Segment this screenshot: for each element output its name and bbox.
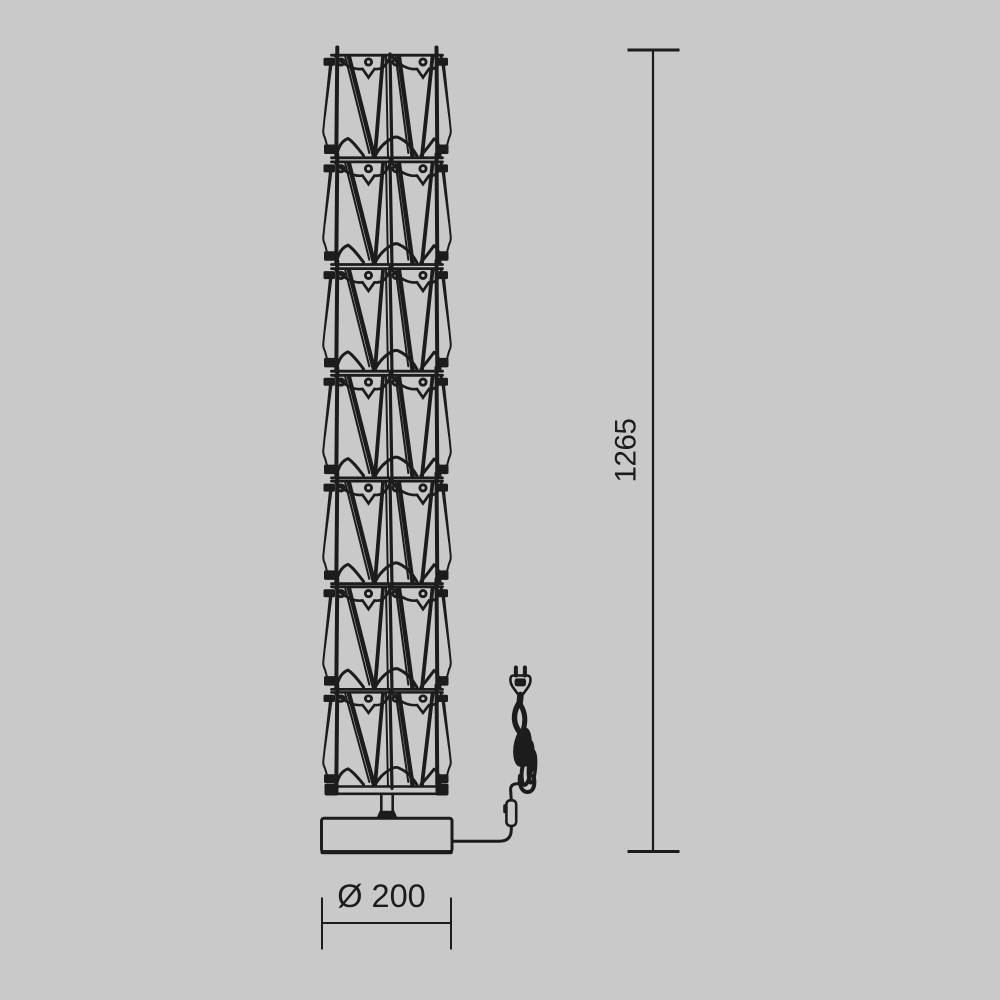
- svg-text:Ø 200: Ø 200: [337, 878, 426, 914]
- svg-text:1265: 1265: [610, 418, 643, 482]
